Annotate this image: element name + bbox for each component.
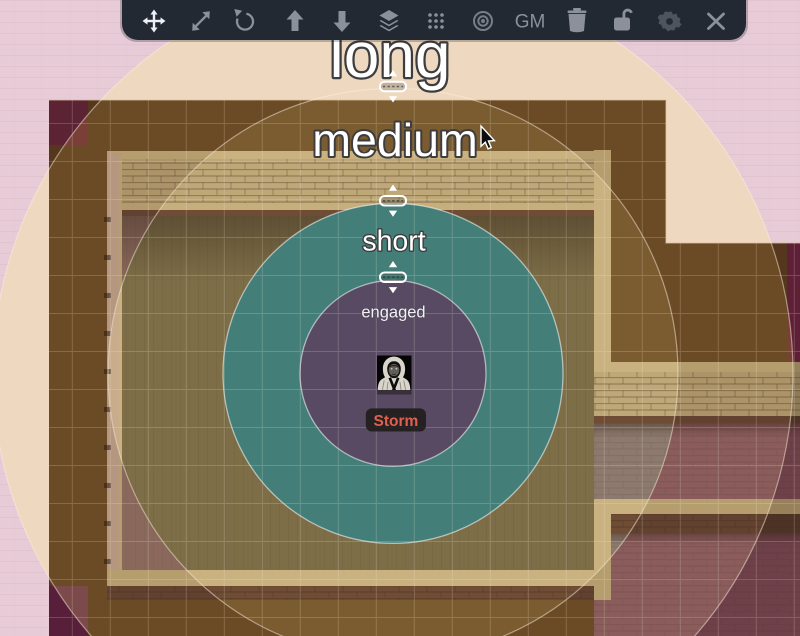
svg-text:medium: medium	[312, 114, 477, 166]
svg-text:Storm: Storm	[374, 413, 419, 430]
svg-text:GM: GM	[515, 12, 546, 33]
svg-text:short: short	[362, 226, 425, 258]
svg-text:engaged: engaged	[361, 304, 425, 322]
